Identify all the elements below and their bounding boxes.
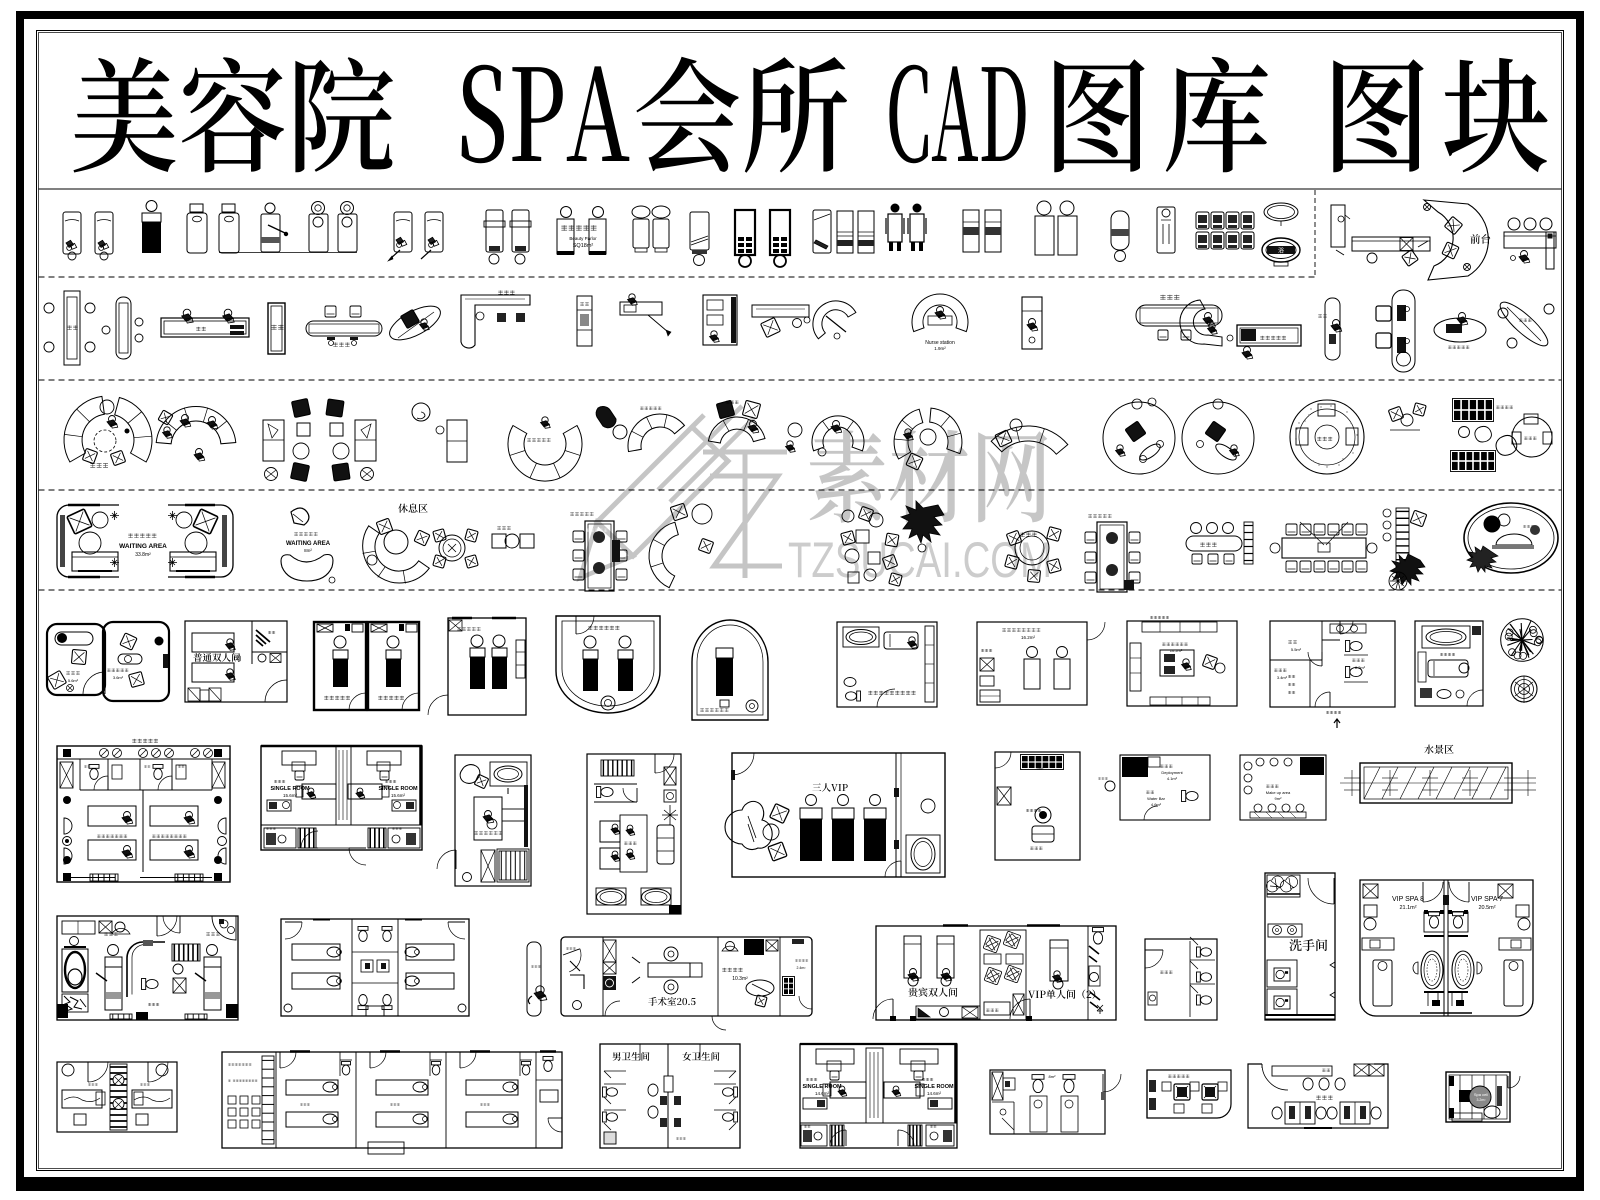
- svg-text:浴: 浴: [1278, 247, 1284, 255]
- svg-text:WAITING AREA: WAITING AREA: [119, 543, 167, 550]
- svg-text:15.6m²: 15.6m²: [391, 793, 406, 798]
- svg-text:VIP SPA 8: VIP SPA 8: [1392, 896, 1424, 903]
- svg-text:SINGLE ROOM: SINGLE ROOM: [802, 1084, 842, 1090]
- svg-text:Beauty Parlor: Beauty Parlor: [569, 236, 597, 241]
- svg-text:8m²: 8m²: [1049, 1074, 1057, 1079]
- svg-text:Water Bar: Water Bar: [1147, 796, 1166, 801]
- svg-text:10.2m²: 10.2m²: [1170, 648, 1183, 653]
- svg-text:2.4m²: 2.4m²: [797, 966, 807, 970]
- svg-text:1.9m²: 1.9m²: [934, 346, 946, 351]
- svg-text:8m²: 8m²: [304, 548, 312, 553]
- svg-text:SINGLE ROOM: SINGLE ROOM: [270, 786, 310, 792]
- svg-text:4.1m²: 4.1m²: [1167, 776, 1178, 781]
- svg-text:WAITING AREA: WAITING AREA: [286, 541, 331, 547]
- svg-text:9m²: 9m²: [1275, 796, 1283, 801]
- svg-text:20.5m²: 20.5m²: [1478, 905, 1495, 911]
- svg-text:SINGLE ROOM: SINGLE ROOM: [378, 786, 418, 792]
- svg-text:SINGLE ROOM: SINGLE ROOM: [914, 1084, 954, 1090]
- svg-text:Deployment: Deployment: [1161, 770, 1183, 775]
- svg-text:3.4m²: 3.4m²: [1277, 675, 1288, 680]
- svg-text:33.8m²: 33.8m²: [135, 552, 151, 558]
- svg-text:(2): (2): [234, 656, 241, 662]
- svg-text:10.3m²: 10.3m²: [732, 976, 748, 982]
- svg-text:21.1m²: 21.1m²: [1399, 905, 1416, 911]
- svg-text:9m²: 9m²: [1037, 766, 1045, 771]
- svg-text:Make up area: Make up area: [1266, 790, 1291, 795]
- svg-text:SQ18m²: SQ18m²: [573, 243, 594, 249]
- svg-text:14.6m²: 14.6m²: [815, 1091, 830, 1096]
- svg-text:14.6m²: 14.6m²: [927, 1091, 942, 1096]
- svg-text:3.2m²: 3.2m²: [1477, 1098, 1487, 1102]
- svg-text:15.6m²: 15.6m²: [283, 793, 298, 798]
- svg-text:3.6m²: 3.6m²: [113, 675, 124, 680]
- svg-text:5.6m²: 5.6m²: [68, 678, 79, 683]
- svg-text:VIP SPA 7: VIP SPA 7: [1471, 896, 1503, 903]
- svg-text:5.5m²: 5.5m²: [1291, 647, 1302, 652]
- svg-text:16.2m²: 16.2m²: [1021, 635, 1036, 640]
- svg-text:Spa cell: Spa cell: [1474, 1092, 1488, 1097]
